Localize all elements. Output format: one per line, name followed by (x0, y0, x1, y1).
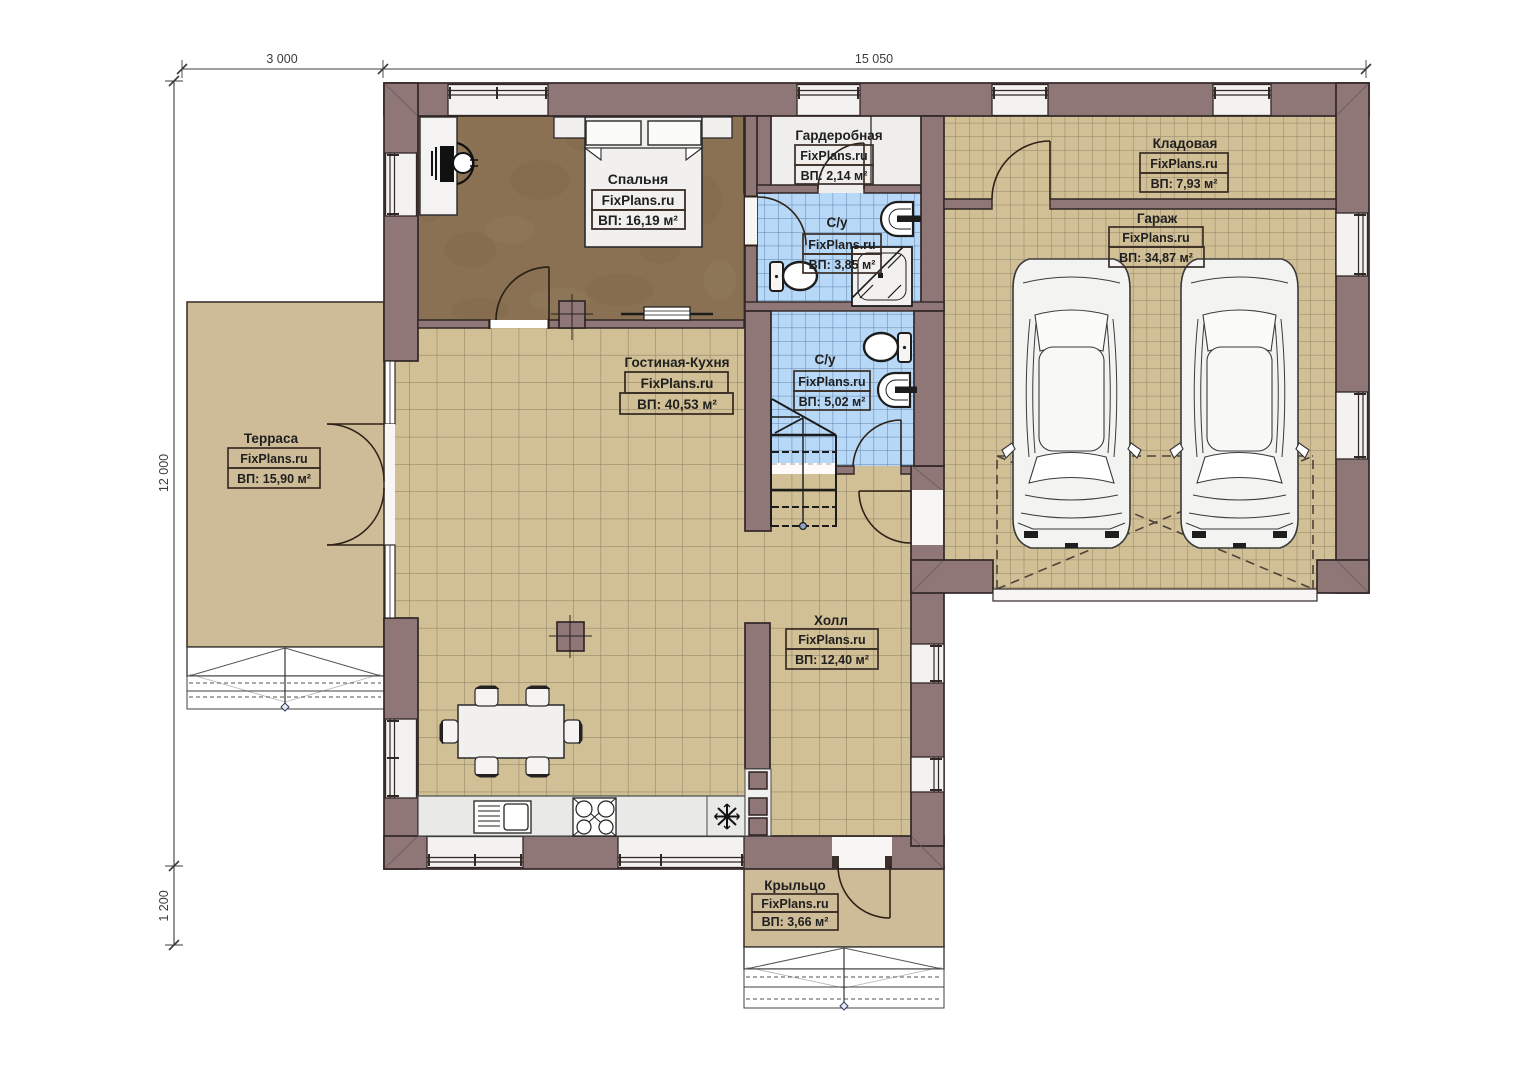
svg-text:3 000: 3 000 (266, 52, 297, 66)
svg-text:ВП: 3,85 м²: ВП: 3,85 м² (809, 258, 876, 272)
svg-text:ВП: 2,14 м²: ВП: 2,14 м² (801, 169, 868, 183)
svg-text:ВП: 12,40 м²: ВП: 12,40 м² (795, 653, 869, 667)
svg-text:FixPlans.ru: FixPlans.ru (1122, 231, 1189, 245)
svg-text:ВП: 16,19 м²: ВП: 16,19 м² (598, 213, 678, 228)
svg-text:12 000: 12 000 (157, 454, 171, 492)
svg-text:Гараж: Гараж (1137, 211, 1178, 226)
svg-text:15 050: 15 050 (855, 52, 893, 66)
svg-text:ВП: 7,93 м²: ВП: 7,93 м² (1151, 177, 1218, 191)
svg-text:Гардеробная: Гардеробная (795, 128, 882, 143)
svg-text:FixPlans.ru: FixPlans.ru (641, 376, 714, 391)
svg-text:Крыльцо: Крыльцо (764, 878, 825, 893)
svg-text:ВП: 34,87 м²: ВП: 34,87 м² (1119, 251, 1193, 265)
svg-text:Спальня: Спальня (608, 171, 668, 187)
svg-text:FixPlans.ru: FixPlans.ru (1150, 157, 1217, 171)
svg-text:FixPlans.ru: FixPlans.ru (800, 149, 867, 163)
svg-text:Холл: Холл (814, 613, 848, 628)
svg-text:Гостиная-Кухня: Гостиная-Кухня (625, 355, 730, 370)
svg-text:FixPlans.ru: FixPlans.ru (798, 633, 865, 647)
svg-text:С/у: С/у (826, 215, 848, 230)
svg-text:FixPlans.ru: FixPlans.ru (808, 238, 875, 252)
svg-text:ВП: 40,53 м²: ВП: 40,53 м² (637, 397, 717, 412)
svg-text:ВП: 5,02 м²: ВП: 5,02 м² (799, 395, 866, 409)
svg-text:Терраса: Терраса (244, 431, 299, 446)
svg-text:FixPlans.ru: FixPlans.ru (798, 375, 865, 389)
svg-text:1 200: 1 200 (157, 890, 171, 921)
svg-text:ВП: 15,90 м²: ВП: 15,90 м² (237, 472, 311, 486)
svg-text:FixPlans.ru: FixPlans.ru (240, 452, 307, 466)
svg-text:FixPlans.ru: FixPlans.ru (761, 897, 828, 911)
svg-text:Кладовая: Кладовая (1153, 136, 1218, 151)
svg-text:FixPlans.ru: FixPlans.ru (602, 193, 675, 208)
svg-text:ВП: 3,66 м²: ВП: 3,66 м² (762, 915, 829, 929)
svg-text:С/у: С/у (814, 352, 836, 367)
